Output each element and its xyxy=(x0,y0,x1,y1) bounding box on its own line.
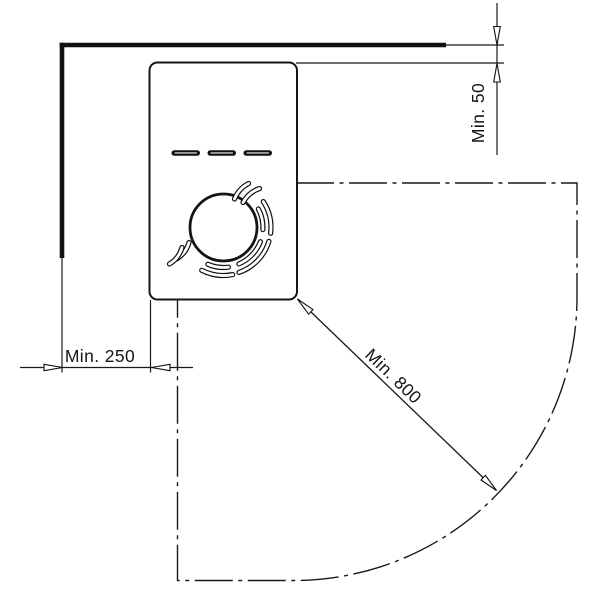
vent-slot-highlight xyxy=(247,152,270,153)
vent-slot-highlight xyxy=(211,152,234,153)
control-knob xyxy=(190,194,257,261)
vent-slot-highlight xyxy=(175,152,198,153)
dimension-label-top-clearance: Min. 50 xyxy=(468,83,488,143)
dimension-side-clearance: Min. 250 xyxy=(20,346,193,371)
dimension-arrow-down xyxy=(494,27,501,46)
dimension-label-side-clearance: Min. 250 xyxy=(65,346,135,366)
dimension-arrow-arc xyxy=(481,475,497,490)
dimension-arrow-right xyxy=(44,364,63,370)
dimension-label-radius-clearance: Min. 800 xyxy=(361,344,425,407)
installation-clearance-diagram: Min. 50 Min. 250 Min. 800 xyxy=(0,0,600,600)
dimension-radius-clearance: Min. 800 xyxy=(298,299,497,491)
technical-drawing-canvas: Min. 50 Min. 250 Min. 800 xyxy=(0,0,600,600)
dimension-line-radius xyxy=(298,299,497,491)
dimension-arrow-left xyxy=(152,364,171,370)
vent-slot-row xyxy=(172,150,273,156)
dimension-top-clearance: Min. 50 xyxy=(468,3,500,155)
dimension-arrow-up xyxy=(494,64,501,83)
dimension-arrow-corner xyxy=(298,299,314,314)
